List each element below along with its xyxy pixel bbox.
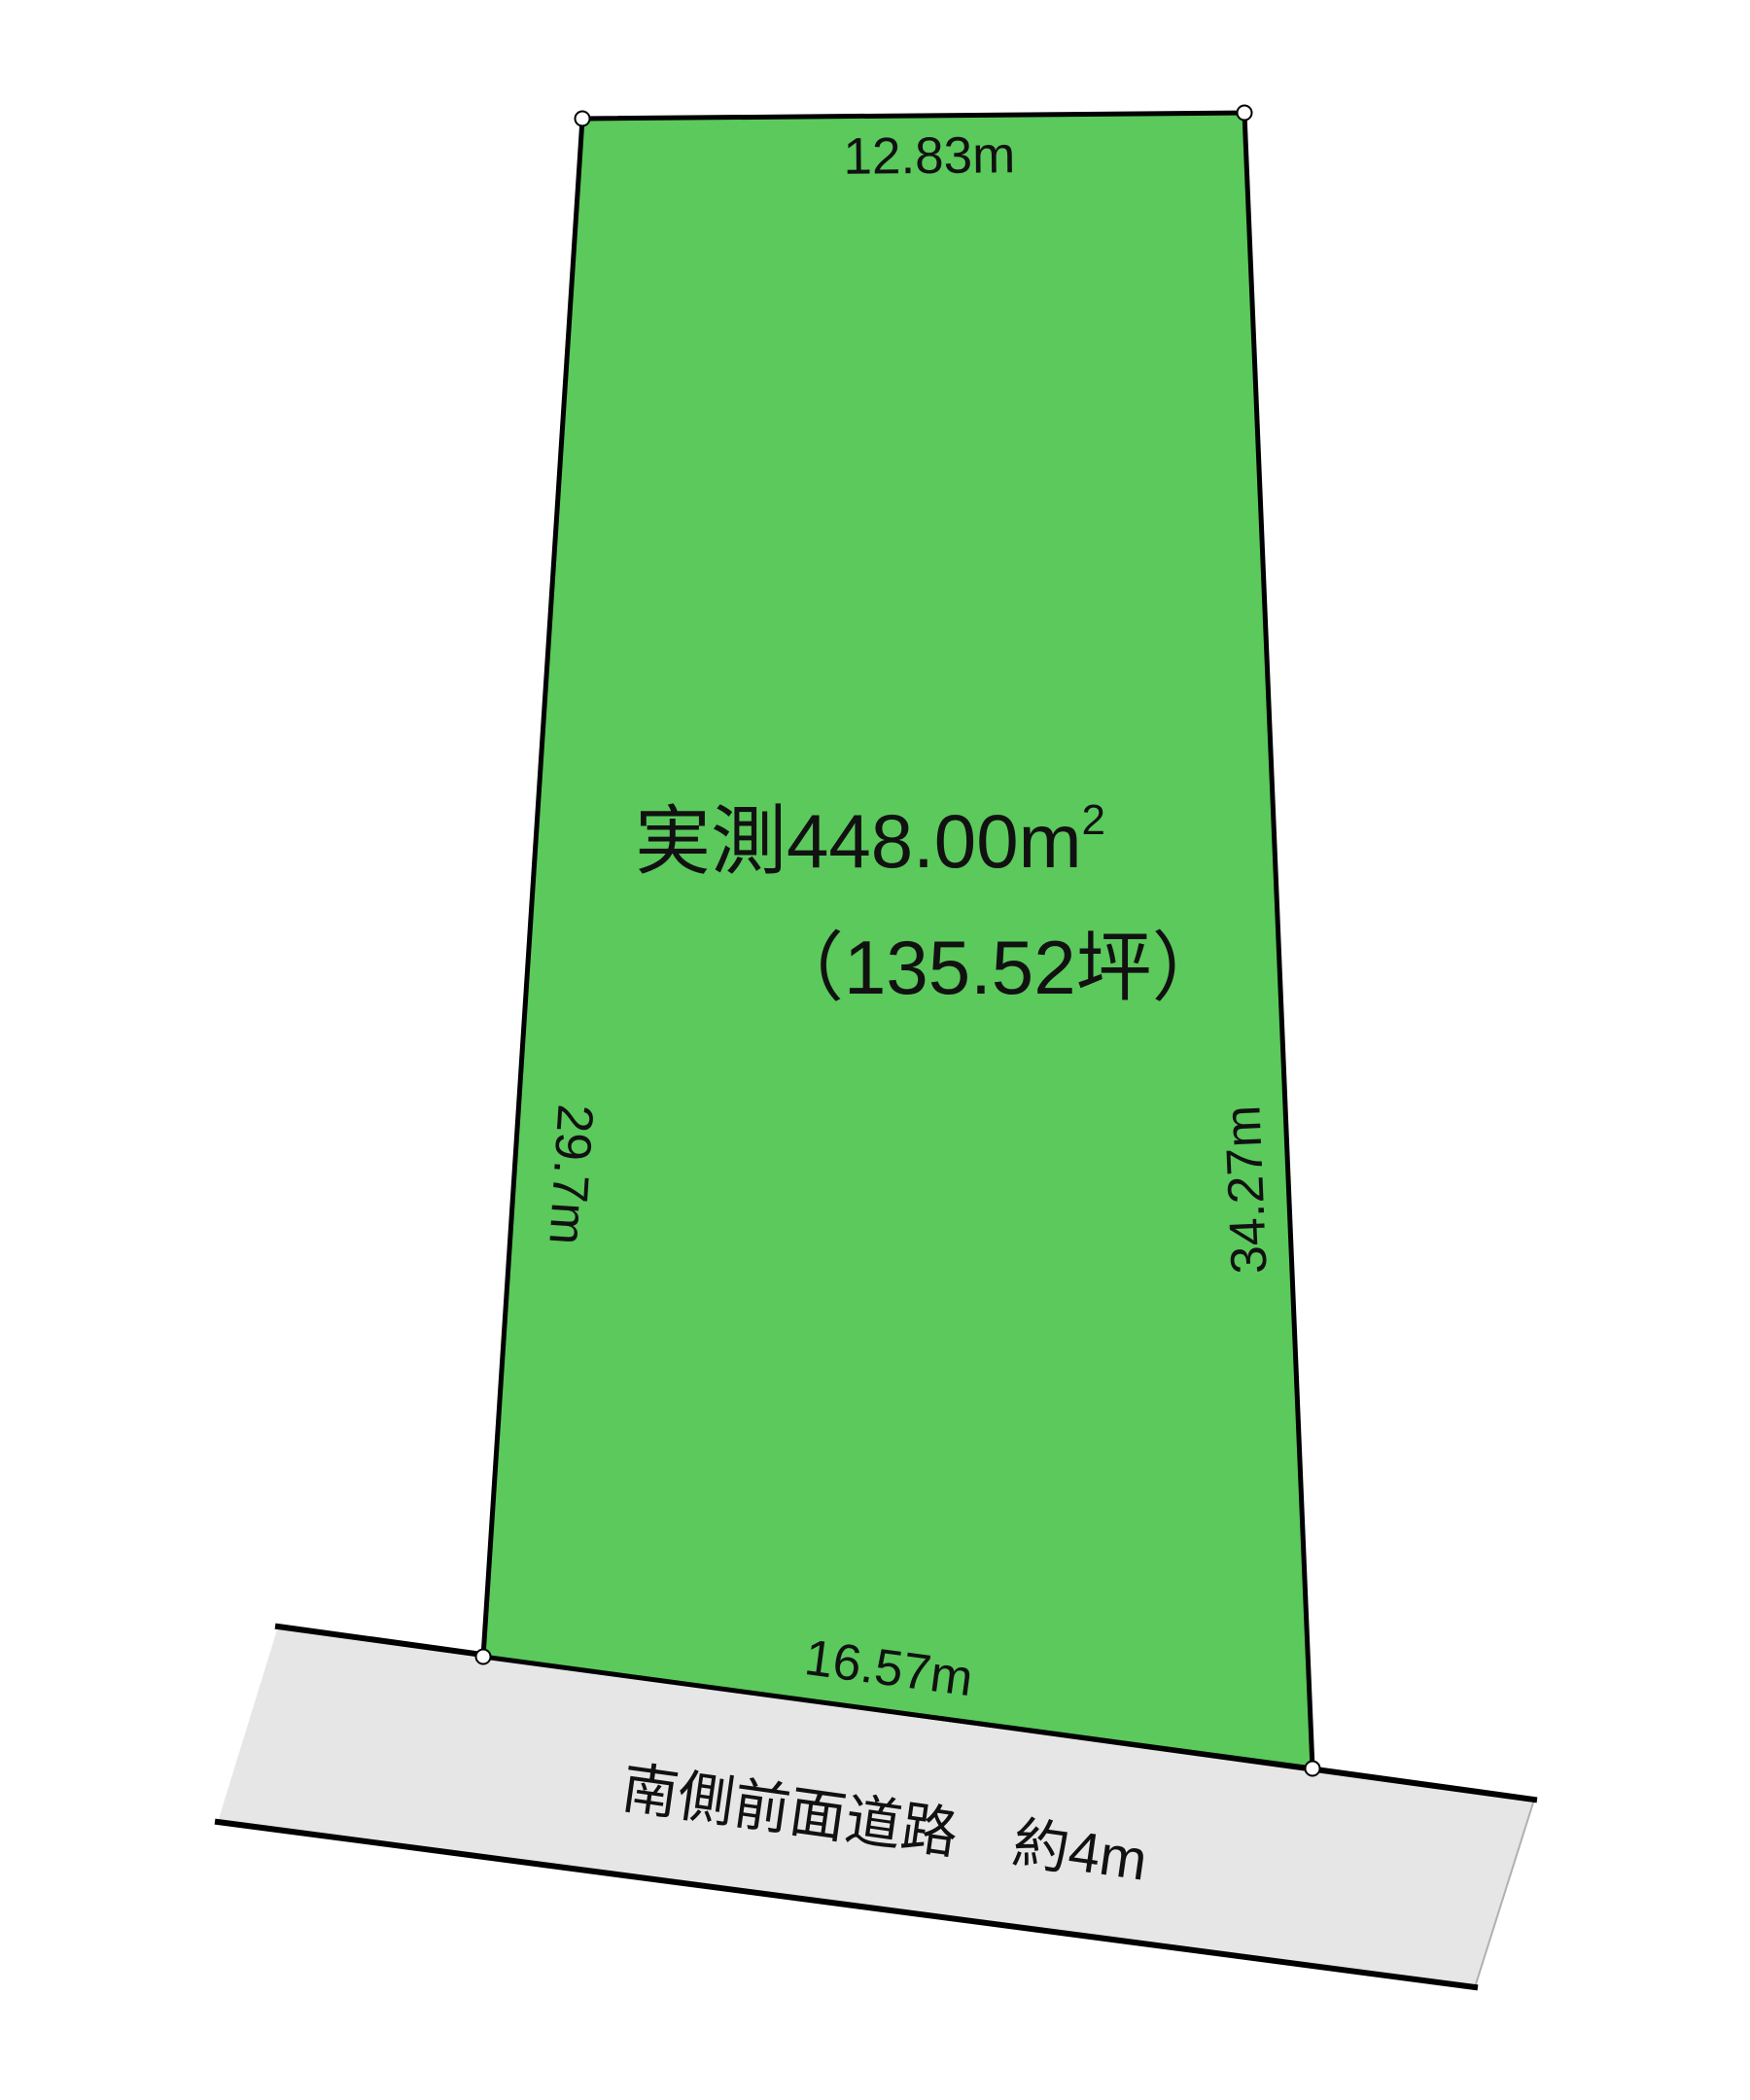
left-dimension-label: 29.7m <box>538 1102 603 1246</box>
vertex-marker-top-left <box>576 112 590 126</box>
area-label-superscript: 2 <box>1082 796 1105 844</box>
vertex-marker-bottom-left <box>476 1650 491 1664</box>
area-label: 実測448.00m2 <box>635 796 1105 884</box>
top-dimension-label: 12.83m <box>843 126 1015 186</box>
right-dimension-label: 34.27m <box>1214 1104 1277 1276</box>
vertex-marker-top-right <box>1238 106 1252 121</box>
plot-diagram-page: 12.83m 実測448.00m2 （135.52坪） 29.7m 34.27m… <box>0 0 1750 2100</box>
tsubo-label: （135.52坪） <box>768 925 1228 1010</box>
vertex-marker-bottom-right <box>1306 1762 1320 1776</box>
plot-diagram: 12.83m 実測448.00m2 （135.52坪） 29.7m 34.27m… <box>0 0 1750 2100</box>
area-label-main: 実測448.00m <box>635 798 1082 884</box>
